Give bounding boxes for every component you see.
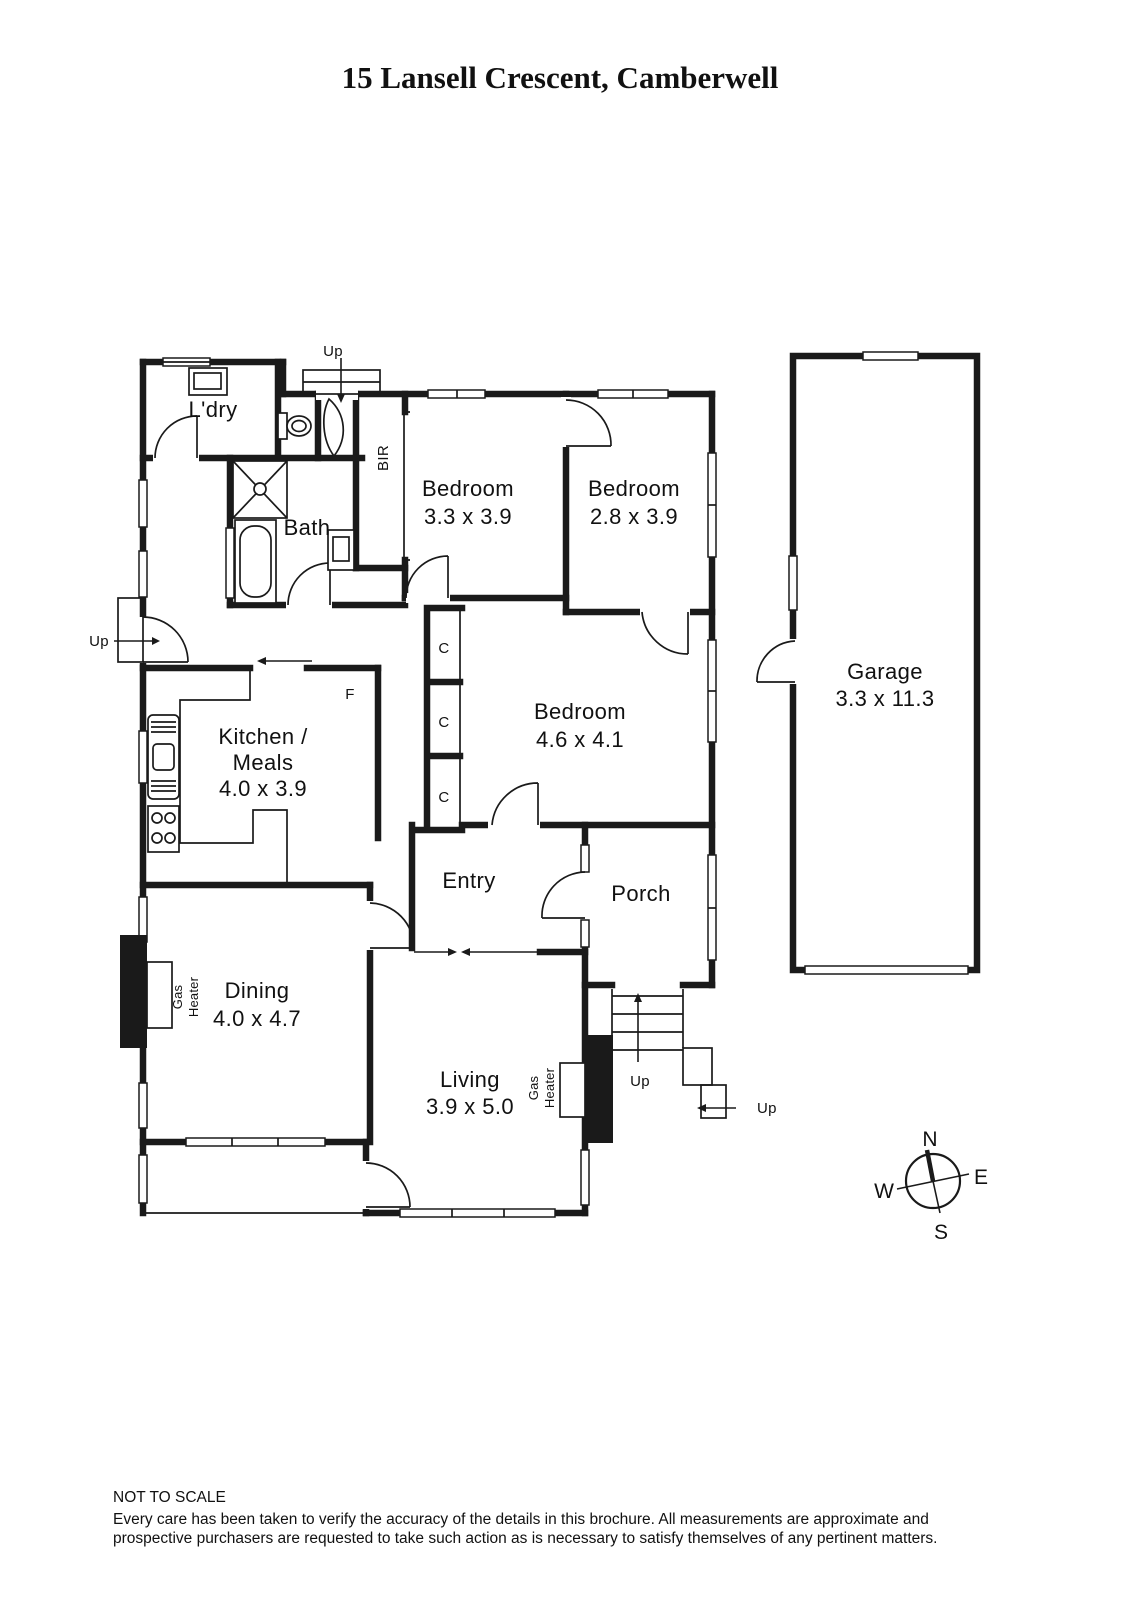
compass-south: S bbox=[934, 1221, 948, 1244]
room-dims-living: 3.9 x 5.0 bbox=[426, 1094, 514, 1119]
room-dims-garage: 3.3 x 11.3 bbox=[836, 686, 935, 711]
room-label-kitchen-2: Meals bbox=[233, 750, 294, 775]
gas-heater-living-2: Heater bbox=[542, 1067, 557, 1108]
fridge-label: F bbox=[345, 686, 354, 703]
floorplan-svg: 15 Lansell Crescent, Camberwell bbox=[0, 0, 1131, 1600]
room-dims-bedroom1: 3.3 x 3.9 bbox=[424, 504, 512, 529]
vanity-icon bbox=[328, 530, 354, 570]
up-label-top: Up bbox=[323, 343, 343, 360]
room-label-dining: Dining bbox=[225, 978, 290, 1003]
closet-label-3: C bbox=[438, 789, 449, 806]
laundry-trough-icon bbox=[189, 368, 227, 395]
room-label-bath: Bath bbox=[284, 515, 331, 540]
room-label-living: Living bbox=[440, 1067, 500, 1092]
room-label-bedroom3: Bedroom bbox=[534, 699, 626, 724]
bathtub-icon bbox=[235, 520, 276, 603]
room-dims-dining: 4.0 x 4.7 bbox=[213, 1006, 301, 1031]
room-dims-kitchen: 4.0 x 3.9 bbox=[219, 776, 307, 801]
page-title: 15 Lansell Crescent, Camberwell bbox=[342, 60, 779, 95]
room-labels: L'dry Bath BIR Bedroom 3.3 x 3.9 Bedroom… bbox=[189, 397, 935, 1119]
room-label-kitchen-1: Kitchen / bbox=[218, 724, 308, 749]
room-label-bir: BIR bbox=[375, 445, 392, 471]
fireplace-living bbox=[560, 1035, 613, 1143]
up-label-landing: Up bbox=[757, 1100, 777, 1117]
cooktop-icon bbox=[148, 715, 179, 799]
compass: N S E W bbox=[874, 1128, 988, 1244]
compass-north: N bbox=[922, 1128, 937, 1151]
room-label-porch: Porch bbox=[611, 881, 670, 906]
gas-heater-dining-1: Gas bbox=[170, 984, 185, 1009]
up-label-stairs: Up bbox=[630, 1073, 650, 1090]
room-label-laundry: L'dry bbox=[189, 397, 238, 422]
up-label-side: Up bbox=[89, 633, 109, 650]
compass-east: E bbox=[974, 1166, 988, 1189]
room-label-garage: Garage bbox=[847, 659, 923, 684]
stove-icon bbox=[148, 806, 179, 852]
compass-west: W bbox=[874, 1180, 894, 1203]
room-label-entry: Entry bbox=[442, 868, 495, 893]
fireplace-dining bbox=[120, 935, 172, 1048]
room-dims-bedroom3: 4.6 x 4.1 bbox=[536, 727, 624, 752]
room-dims-bedroom2: 2.8 x 3.9 bbox=[590, 504, 678, 529]
gas-heater-living-1: Gas bbox=[526, 1075, 541, 1100]
room-label-bedroom2: Bedroom bbox=[588, 476, 680, 501]
bir-robe-front bbox=[404, 412, 410, 560]
stairs bbox=[612, 989, 726, 1118]
closet-label-1: C bbox=[438, 640, 449, 657]
gas-heater-dining-2: Heater bbox=[186, 976, 201, 1017]
floorplan-page: 15 Lansell Crescent, Camberwell bbox=[0, 0, 1131, 1600]
not-to-scale-note: NOT TO SCALE bbox=[113, 1489, 226, 1506]
shower-icon bbox=[233, 461, 287, 518]
room-label-bedroom1: Bedroom bbox=[422, 476, 514, 501]
closet-label-2: C bbox=[438, 714, 449, 731]
footer: NOT TO SCALE Every care has been taken t… bbox=[113, 1489, 938, 1547]
disclaimer-line-2: prospective purchasers are requested to … bbox=[113, 1530, 938, 1547]
toilet-icon bbox=[278, 413, 311, 439]
disclaimer-line-1: Every care has been taken to verify the … bbox=[113, 1511, 929, 1528]
